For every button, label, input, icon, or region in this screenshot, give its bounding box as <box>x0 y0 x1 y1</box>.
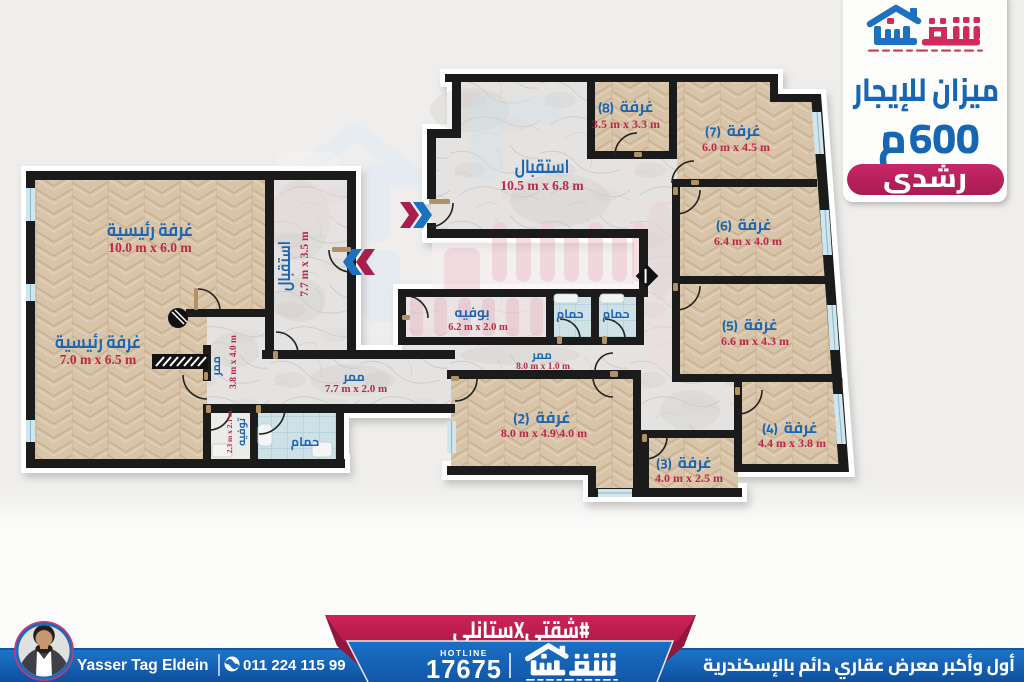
svg-text:011 224 115 99: 011 224 115 99 <box>243 657 346 674</box>
svg-text:10.5 m x 6.8 m: 10.5 m x 6.8 m <box>500 178 584 193</box>
svg-text:8.0 m x 4.9\4.0 m: 8.0 m x 4.9\4.0 m <box>501 426 587 440</box>
svg-text:10.0 m x 6.0 m: 10.0 m x 6.0 m <box>108 240 192 255</box>
svg-text:2.3 m x 2.1 m: 2.3 m x 2.1 m <box>225 410 234 453</box>
svg-text:4.4 m x 3.8 m: 4.4 m x 3.8 m <box>758 436 826 450</box>
svg-text:6.0 m x 4.5 m: 6.0 m x 4.5 m <box>702 140 770 154</box>
svg-text:8.0 m x 1.0 m: 8.0 m x 1.0 m <box>516 362 570 372</box>
svg-text:4.0 m x 2.5 m: 4.0 m x 2.5 m <box>655 471 723 485</box>
svg-text:7.7 m x 3.5 m: 7.7 m x 3.5 m <box>299 231 311 297</box>
svg-text:Yasser Tag Eldein: Yasser Tag Eldein <box>77 657 209 674</box>
svg-text:6.6 m x 4.3 m: 6.6 m x 4.3 m <box>721 334 789 348</box>
svg-text:7.7 m x 2.0 m: 7.7 m x 2.0 m <box>325 383 387 395</box>
svg-text:17675: 17675 <box>426 656 502 682</box>
svg-text:3.5 m x 3.3 m: 3.5 m x 3.3 m <box>592 117 660 131</box>
svg-text:6.2 m x 2.0 m: 6.2 m x 2.0 m <box>448 322 508 333</box>
svg-text:3.8 m x 4.0 m: 3.8 m x 4.0 m <box>229 335 239 389</box>
svg-text:6.4 m x 4.0 m: 6.4 m x 4.0 m <box>714 234 782 248</box>
svg-text:7.0 m x 6.5 m: 7.0 m x 6.5 m <box>60 352 137 367</box>
